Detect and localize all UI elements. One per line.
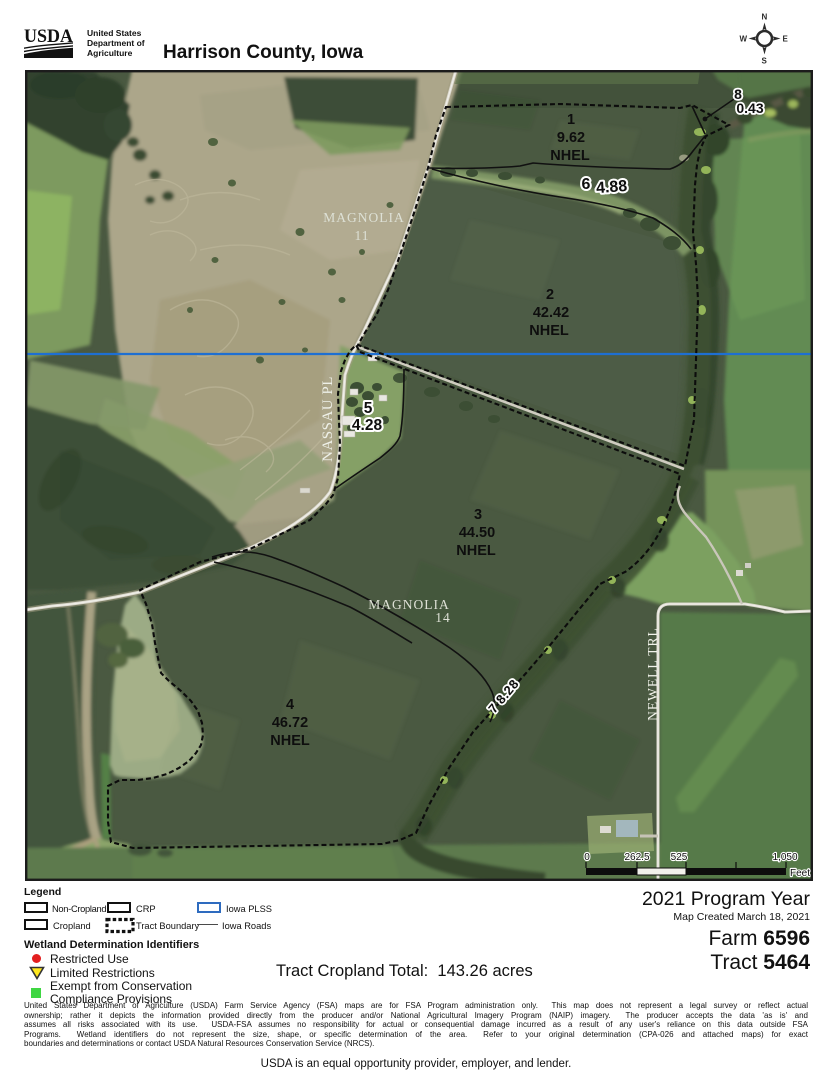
svg-text:1: 1 [567, 112, 575, 128]
svg-text:2: 2 [546, 287, 554, 303]
svg-text:525: 525 [671, 852, 688, 863]
svg-text:11: 11 [355, 228, 370, 243]
svg-text:NHEL: NHEL [529, 323, 569, 339]
svg-text:NEWELL TRL: NEWELL TRL [645, 627, 660, 721]
svg-text:NHEL: NHEL [550, 148, 590, 164]
svg-text:W: W [740, 35, 748, 44]
svg-text:44.50: 44.50 [459, 525, 495, 541]
svg-text:42.42: 42.42 [533, 305, 569, 321]
svg-text:Feet: Feet [790, 868, 810, 879]
svg-text:4.28: 4.28 [352, 417, 383, 434]
svg-text:S: S [762, 57, 768, 66]
svg-text:0: 0 [584, 852, 590, 863]
svg-text:NASSAU PL: NASSAU PL [320, 376, 336, 462]
svg-text:0.43: 0.43 [736, 100, 763, 116]
svg-text:6: 6 [582, 176, 591, 193]
svg-text:N: N [762, 13, 768, 22]
svg-text:4.88: 4.88 [596, 178, 628, 197]
svg-text:NHEL: NHEL [270, 733, 310, 749]
svg-text:1,050: 1,050 [772, 852, 797, 863]
svg-text:262.5: 262.5 [624, 852, 649, 863]
svg-text:NHEL: NHEL [456, 543, 496, 559]
svg-text:14: 14 [435, 610, 451, 625]
svg-text:9.62: 9.62 [557, 130, 585, 146]
svg-text:5: 5 [364, 400, 373, 417]
svg-text:3: 3 [474, 507, 482, 523]
svg-text:4: 4 [286, 697, 294, 713]
svg-text:E: E [783, 35, 789, 44]
svg-text:46.72: 46.72 [272, 715, 308, 731]
svg-text:MAGNOLIA: MAGNOLIA [323, 210, 405, 225]
